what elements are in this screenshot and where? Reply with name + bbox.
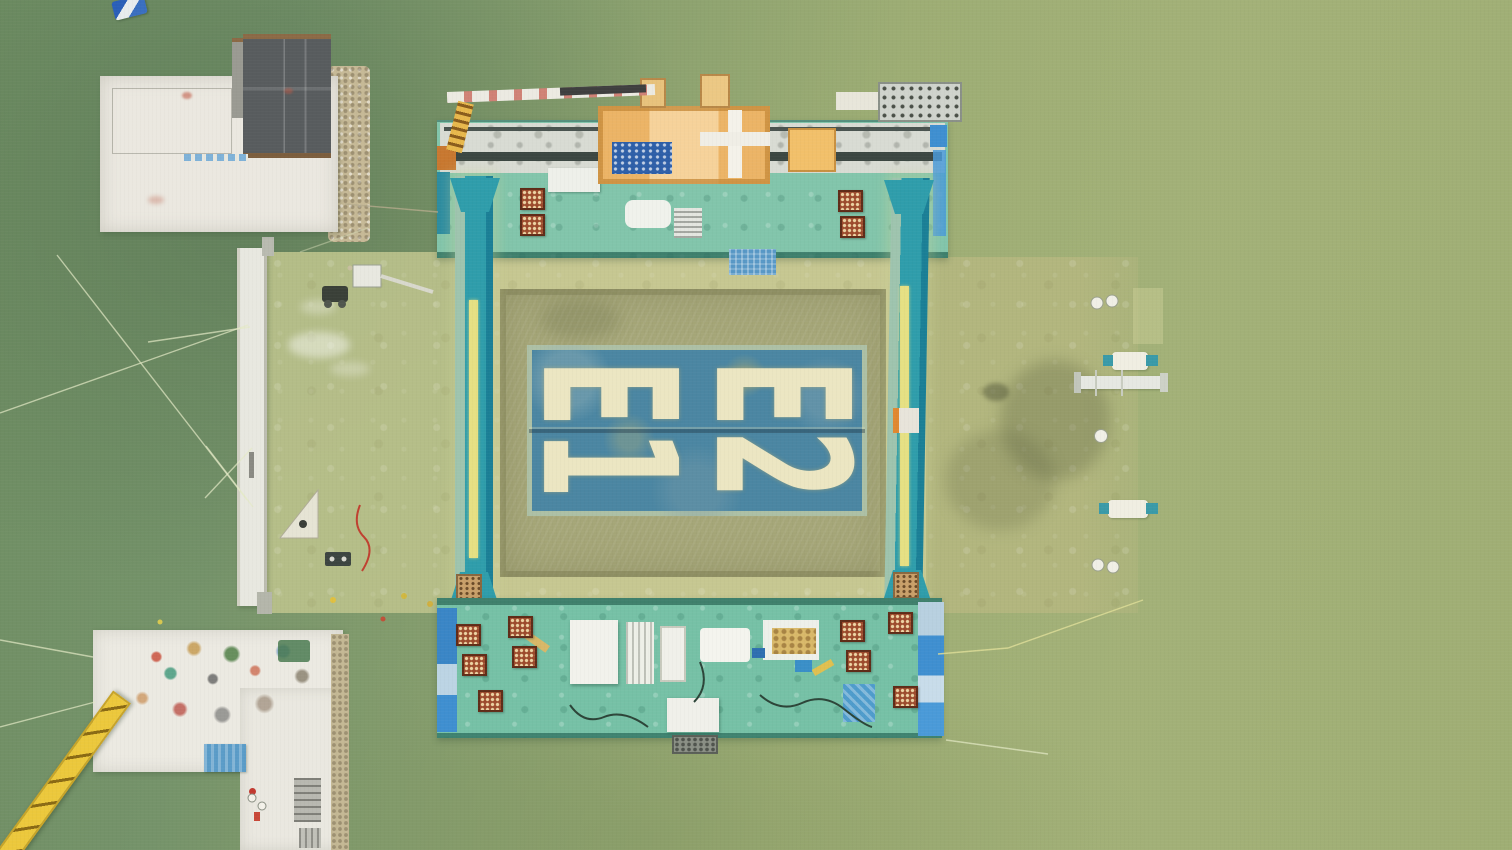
aerial-photo: E1 E2 [0,0,1512,850]
photo-grain [0,0,1512,850]
